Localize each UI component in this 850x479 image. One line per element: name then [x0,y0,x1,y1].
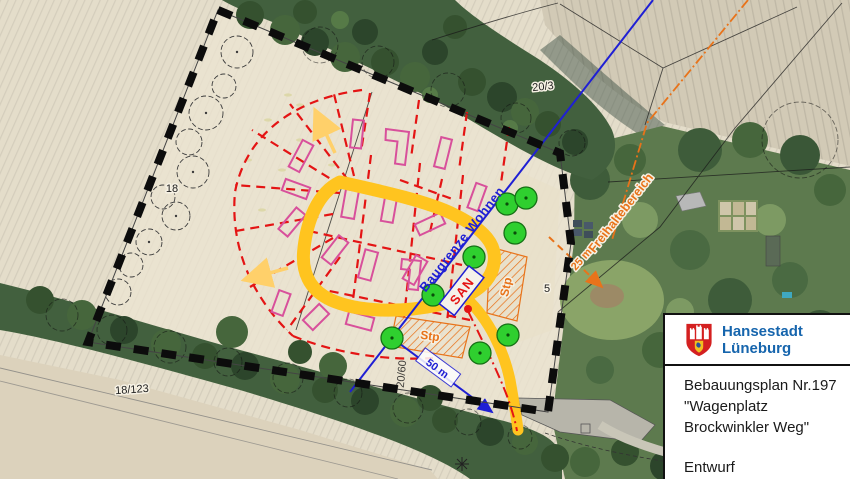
survey-star-icon [455,457,469,471]
plan-status: Entwurf [684,457,842,478]
label-parcel-20-3: 20/3 [532,80,555,94]
label-parcel-18: 18 [166,183,178,195]
plan-title-line1: Bebauungsplan Nr.197 [684,375,842,396]
legend-box: Hansestadt Lüneburg Bebauungsplan Nr.197… [663,313,850,479]
city-name-line1: Hansestadt [722,323,803,340]
city-logo-row: Hansestadt Lüneburg [665,315,850,366]
label-parcel-18-123: 18/123 [115,383,149,397]
label-parcel-20-60: 20/60 [395,360,409,388]
plan-title-line2: "Wagenplatz [684,396,842,417]
city-name-line2: Lüneburg [722,340,803,357]
label-parcel-5: 5 [544,283,550,295]
label-stp-bottom: Stp [419,328,440,345]
luneburg-coat-of-arms-icon [685,322,713,358]
bebauungsplan-map: 20/3 18 18/123 20/60 5 Baugrenze Wohnen … [0,0,850,479]
plan-title-line3: Brockwinkler Weg" [684,417,842,438]
utility-point [464,305,472,313]
